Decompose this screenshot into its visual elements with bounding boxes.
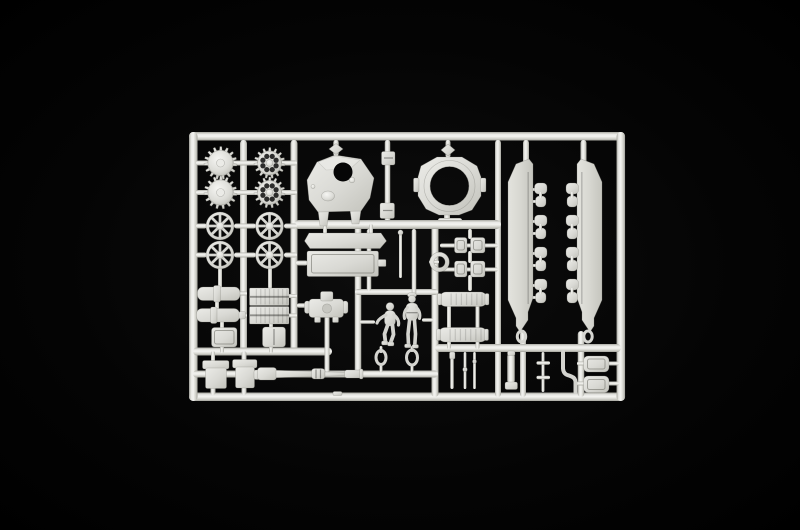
tow-rod bbox=[542, 352, 545, 392]
hull-side-left bbox=[508, 159, 533, 332]
exhaust-2-ribs-rib bbox=[455, 329, 456, 341]
toothed-idler-2-lightening-hole bbox=[264, 183, 269, 188]
exhaust-stub-1 bbox=[447, 305, 451, 329]
gun-tube bbox=[276, 370, 312, 377]
housing-1-body bbox=[206, 368, 227, 389]
turret-trunnion-left bbox=[318, 210, 329, 226]
runner-h1 bbox=[435, 344, 621, 352]
runner-v2 bbox=[291, 140, 298, 352]
wheel-rod-4a bbox=[196, 253, 207, 258]
frame-rail-bottom bbox=[189, 393, 625, 402]
figure1-arm-stub bbox=[360, 320, 375, 324]
toothed-idler-1-lightening-hole bbox=[270, 167, 275, 172]
toothed-idler-2-lightening-hole bbox=[270, 183, 275, 188]
exhaust-2-ribs-rib bbox=[460, 329, 461, 341]
exhaust-1-cap-left bbox=[438, 294, 442, 306]
toothed-idler-2-lightening-hole bbox=[260, 193, 265, 198]
exhaust-1-ribs-rib bbox=[466, 294, 467, 306]
hull-side-right bbox=[577, 159, 602, 332]
toothed-idler-1-hub bbox=[266, 160, 273, 167]
exhaust-2 bbox=[439, 328, 488, 343]
exhaust-2-ribs-rib bbox=[475, 329, 476, 341]
frame-rail-right bbox=[617, 132, 626, 401]
deck-plate bbox=[305, 233, 387, 249]
wheel-rod-3c bbox=[284, 224, 297, 229]
mantlet-tab-1 bbox=[315, 317, 321, 323]
wheel-rod-3a bbox=[196, 224, 207, 229]
drive-sprocket-2-hub-cap bbox=[217, 189, 225, 197]
pivot-post bbox=[507, 353, 515, 384]
exhaust-2-ribs-rib bbox=[470, 329, 471, 341]
hatchplate-tab-left bbox=[296, 261, 308, 266]
toothed-idler-1-lightening-hole bbox=[264, 167, 269, 172]
bogie-l1-pin bbox=[539, 192, 542, 198]
exhaust-1-ribs-rib bbox=[481, 294, 482, 306]
mantlet-bore bbox=[322, 304, 331, 313]
toothed-idler-1-lightening-hole bbox=[273, 163, 278, 168]
wheel-rod-3b bbox=[234, 224, 256, 229]
hatchplate-tab-right bbox=[378, 260, 386, 267]
axle-rod-2 bbox=[473, 352, 476, 389]
mantlet-tab-2 bbox=[333, 317, 339, 323]
cylinder-part-2-collar bbox=[211, 307, 218, 324]
muzzle-brake bbox=[312, 369, 326, 380]
figure-2-leg-left bbox=[408, 321, 410, 346]
exhaust-1-ribs-rib bbox=[456, 294, 457, 306]
figure-2-foot-right bbox=[412, 345, 419, 349]
road-wheel-1-hub bbox=[216, 222, 224, 230]
wheel-rod-4b bbox=[234, 253, 256, 258]
gun-tip-ring bbox=[360, 369, 364, 379]
ring-tab-left bbox=[414, 178, 420, 192]
toothed-idler-1-lightening-hole bbox=[273, 158, 278, 163]
can-bar-2 bbox=[440, 268, 498, 272]
toothed-idler-2-lightening-hole bbox=[273, 193, 278, 198]
road-wheel-3-hub bbox=[216, 251, 224, 259]
toothed-idler-1-lightening-hole bbox=[260, 158, 265, 163]
axle-knob-2 bbox=[473, 360, 477, 364]
cylinder-part-2-nozzle bbox=[239, 312, 246, 320]
exhaust-1-cap-right bbox=[485, 294, 489, 306]
figure-2-leg-right bbox=[415, 321, 416, 346]
turret-port bbox=[349, 177, 355, 183]
toothed-idler-2-lightening-hole bbox=[264, 196, 269, 201]
pivot-post-cap bbox=[508, 351, 516, 356]
tow-rod-bar-2 bbox=[537, 376, 551, 379]
bogie-r2-pin bbox=[571, 224, 574, 230]
fuel-can-2 bbox=[471, 238, 486, 254]
can-stub-top bbox=[468, 229, 472, 239]
figure-1-head bbox=[386, 303, 394, 311]
figure-2-foot-left bbox=[405, 344, 412, 348]
bogie-l4-pin bbox=[539, 288, 542, 294]
wheel-rod-4c bbox=[284, 253, 297, 258]
rail-nub bbox=[333, 392, 342, 396]
gun-tube-2 bbox=[325, 372, 345, 376]
figure2-arm-stub bbox=[422, 318, 433, 322]
figure-2-head bbox=[408, 295, 415, 302]
can-bar-1 bbox=[440, 244, 498, 248]
wheel-down-stub-2 bbox=[268, 267, 272, 289]
road-wheel-2-hub bbox=[266, 222, 274, 230]
frame-rail-top bbox=[189, 132, 625, 141]
exhaust-2-ribs-rib bbox=[480, 329, 481, 341]
road-wheel-4-hub bbox=[266, 251, 274, 259]
runner-v1 bbox=[240, 140, 247, 352]
cleaning-rod bbox=[399, 230, 402, 278]
toothed-idler-1-lightening-hole bbox=[260, 163, 265, 168]
figure-1-foot-right bbox=[388, 342, 395, 346]
fuel-can-4 bbox=[471, 261, 486, 277]
pivot-post-foot bbox=[505, 382, 518, 390]
mantlet-top-block bbox=[321, 292, 334, 302]
housing-2-body bbox=[236, 367, 255, 388]
exhaust-1-ribs-rib bbox=[461, 294, 462, 306]
exhaust-2-cap-right bbox=[485, 329, 489, 341]
photo-stage bbox=[0, 0, 800, 530]
fuel-can-3 bbox=[455, 261, 468, 277]
cylinder-part-1-collar bbox=[214, 286, 221, 303]
turret-rivet bbox=[311, 185, 315, 189]
riser-2 bbox=[412, 229, 417, 295]
exhaust-1-ribs-rib bbox=[451, 294, 452, 306]
cylinder-part-2 bbox=[197, 309, 240, 323]
gun-base bbox=[258, 368, 277, 381]
frame-rail-left bbox=[189, 132, 198, 401]
model-kit-sprue-photo bbox=[0, 0, 800, 530]
drive-sprocket-1-hub-cap bbox=[217, 159, 225, 167]
exhaust-2-ribs-rib bbox=[465, 329, 466, 341]
toothed-idler-1-lightening-hole bbox=[264, 154, 269, 159]
axle-knob-1 bbox=[463, 367, 468, 372]
bogie-r4-pin bbox=[571, 288, 574, 294]
bogie-r1-pin bbox=[571, 192, 574, 198]
bogie-l2-pin bbox=[539, 224, 542, 230]
turret-trunnion-right bbox=[350, 210, 361, 224]
exhaust-1 bbox=[440, 292, 488, 307]
exhaust-2-ribs-rib bbox=[450, 329, 451, 341]
exhaust-1-ribs-rib bbox=[471, 294, 472, 306]
tow-rod-bar-1 bbox=[537, 361, 551, 364]
can-stub-bottom bbox=[468, 275, 472, 291]
turret-dome bbox=[322, 191, 335, 201]
ring-tab-right bbox=[481, 178, 487, 192]
exhaust-1-ribs-rib bbox=[476, 294, 477, 306]
figure-1-foot-left bbox=[382, 341, 389, 345]
toothed-idler-1-lightening-hole bbox=[270, 154, 275, 159]
mantlet-stub bbox=[325, 316, 330, 375]
toothed-idler-2-lightening-hole bbox=[273, 187, 278, 192]
exhaust-stub-2 bbox=[476, 305, 480, 329]
figure-2-torso bbox=[406, 303, 418, 321]
figure-1-torso bbox=[385, 311, 396, 327]
toothed-idler-2-lightening-hole bbox=[270, 196, 275, 201]
toothed-idler-2-lightening-hole bbox=[260, 187, 265, 192]
fuel-can-1 bbox=[455, 238, 468, 254]
bogie-r3-pin bbox=[571, 256, 574, 262]
exhaust-2-cap-left bbox=[437, 329, 441, 341]
deckplate-stub-2 bbox=[369, 224, 373, 234]
toothed-idler-2-hub bbox=[266, 189, 273, 196]
travel-lock-top bbox=[450, 352, 456, 359]
cleaning-rod-knob bbox=[398, 230, 403, 235]
bogie-l3-pin bbox=[539, 256, 542, 262]
